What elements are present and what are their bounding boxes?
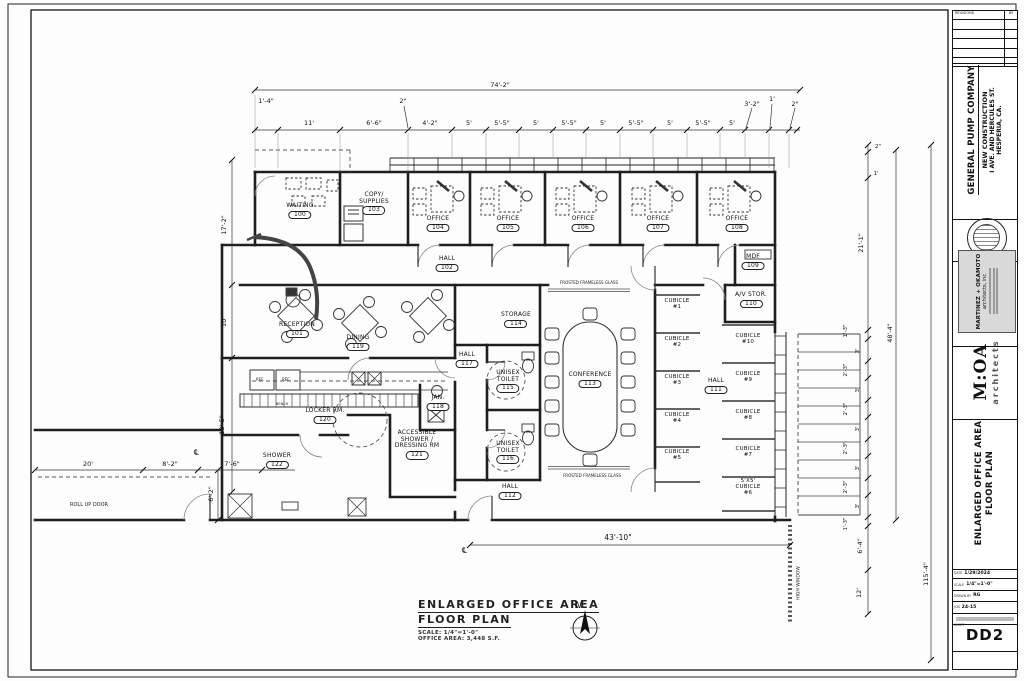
room-number: 110 <box>740 300 763 309</box>
room-label: MDF109 <box>742 254 765 270</box>
dim: 5' <box>466 119 472 127</box>
room-number: 112 <box>499 492 522 501</box>
room-label: CONFERENCE113 <box>568 372 611 388</box>
room-name: OFFICE <box>572 216 595 223</box>
dim: 8'-2" <box>162 460 177 468</box>
room-name: UNISEX TOILET <box>496 370 520 383</box>
sheet-border <box>8 4 1016 677</box>
room-name: HALL <box>459 352 475 359</box>
cubicle-label: 5'X5' CUBICLE #6 <box>735 478 760 496</box>
room-number: 109 <box>742 262 765 271</box>
room-number: 111 <box>705 386 728 395</box>
dim: 2'-3" <box>843 402 849 415</box>
client-block: GENERAL PUMP COMPANY NEW CONSTRUCTION I … <box>956 52 1014 208</box>
dim: 5' <box>600 119 606 127</box>
room-number: 101 <box>285 330 308 339</box>
cubicle-label: CUBICLE #5 <box>664 449 689 461</box>
room-name: JAN. <box>432 395 445 402</box>
cubicle-label: CUBICLE #2 <box>664 336 689 348</box>
dim: 1' <box>873 171 878 177</box>
dim: 3' <box>855 348 861 353</box>
logo-subtext: architects <box>991 339 1000 404</box>
room-name: RECEPTION <box>279 322 315 329</box>
room-label: HALL102 <box>436 256 459 272</box>
dim: 3'-2" <box>744 100 759 108</box>
dim: 2" <box>399 97 406 105</box>
room-name: UNISEX TOILET <box>496 441 520 454</box>
room-label: UNISEX TOILET116 <box>496 441 520 464</box>
sheet-title-block: ENLARGED OFFICE AREA FLOOR PLAN <box>956 410 1014 556</box>
room-number: 108 <box>726 224 749 233</box>
room-name: OFFICE <box>427 216 450 223</box>
room-label: DINING119 <box>347 335 370 351</box>
dim: 3' <box>855 387 861 392</box>
room-label: HALL112 <box>499 484 522 500</box>
bench-note: BENCH <box>276 402 288 406</box>
room-number: 121 <box>406 451 429 460</box>
dim: 7'-6" <box>224 460 239 468</box>
dim: 11' <box>304 119 314 127</box>
firm-type: architects, inc <box>982 274 988 309</box>
sheet-title-line2: FLOOR PLAN <box>985 451 996 515</box>
room-name: A/V STOR. <box>735 292 767 299</box>
dim: 5'-5" <box>494 119 509 127</box>
dim: 18'-5" <box>218 415 226 435</box>
client-name: GENERAL PUMP COMPANY <box>967 65 979 194</box>
sheet-number: DD2 <box>952 626 1018 644</box>
room-number: 115 <box>497 384 520 393</box>
dim-bottom: 43'-10" <box>604 533 631 542</box>
cubicle-label: CUBICLE #10 <box>735 333 760 345</box>
illegible-field <box>956 617 1014 621</box>
floor-plan-linework <box>0 0 1024 681</box>
revisions-header: REVISIONS <box>953 11 1005 19</box>
cubicle-label: CUBICLE #4 <box>664 412 689 424</box>
room-number: 119 <box>347 343 370 352</box>
room-label: RECEPTION101 <box>279 322 315 338</box>
room-label: HALL117 <box>456 352 479 368</box>
room-label: SHOWER122 <box>263 453 291 469</box>
dim: 2'-3" <box>843 441 849 454</box>
room-label: LOCKER RM.120 <box>305 408 344 424</box>
dim-overall-top: 74'-2" <box>490 81 510 89</box>
frosted-glass-note: FROSTED FRAMELESS GLASS <box>560 280 618 285</box>
room-name: WAITING <box>286 203 313 210</box>
drawn-by-label: DRAWN BY <box>954 594 971 598</box>
roll-up-door-note: ROLL UP DOOR <box>70 502 108 508</box>
room-label: OFFICE106 <box>572 216 595 232</box>
dim: 5'-5" <box>561 119 576 127</box>
room-name: OFFICE <box>497 216 520 223</box>
room-number: 105 <box>497 224 520 233</box>
dim: 5'-5" <box>628 119 643 127</box>
room-label: STORAGE114 <box>501 312 531 328</box>
job-label: JOB <box>954 605 960 609</box>
room-label: OFFICE104 <box>427 216 450 232</box>
drawn-by-value: RG <box>973 593 980 598</box>
dim: 5' <box>667 119 673 127</box>
dim: 48'-4" <box>886 323 894 343</box>
room-label: ACCESSIBLE SHOWER / DRESSING RM121 <box>395 430 440 460</box>
plan-scale: SCALE: 1/4"=1'-0" <box>418 630 599 637</box>
cubicle-label: CUBICLE #9 <box>735 371 760 383</box>
cubicle-label: CUBICLE #8 <box>735 409 760 421</box>
dim: 21'-1" <box>857 233 865 253</box>
room-label: A/V STOR.110 <box>735 292 767 308</box>
dim: 6'-2" <box>207 486 215 501</box>
dim: 2'-3" <box>843 363 849 376</box>
dim: 5' <box>729 119 735 127</box>
dim: 1' <box>769 95 775 103</box>
room-number: 120 <box>313 416 336 425</box>
room-name: HALL <box>439 256 455 263</box>
firm-logo: M:OA architects <box>956 338 1014 406</box>
room-label: HALL111 <box>705 378 728 394</box>
dim: 2'-3" <box>843 480 849 493</box>
job-value: 24-15 <box>962 605 977 610</box>
room-label: OFFICE105 <box>497 216 520 232</box>
dim: 4'-2" <box>422 119 437 127</box>
sheet-title-line1: ENLARGED OFFICE AREA <box>974 421 985 546</box>
room-name: STORAGE <box>501 312 531 319</box>
dim: 6'-4" <box>856 538 864 553</box>
centerline-symbol: ℄ <box>194 448 199 457</box>
room-name: MDF <box>746 254 760 261</box>
cubicle-label: CUBICLE #1 <box>664 298 689 310</box>
dim: 3' <box>855 465 861 470</box>
room-name: DINING <box>347 335 370 342</box>
room-number: 103 <box>363 206 386 215</box>
architect-firm-block: MARTINEZ + OKAMOTO architects, inc <box>958 250 1016 333</box>
dashed-lines <box>38 150 525 477</box>
room-name: CONFERENCE <box>568 372 611 379</box>
dim: 6'-6" <box>366 119 381 127</box>
ref-note: REF. <box>282 377 290 382</box>
drawing-sheet: { "tb": { "client": "GENERAL PUMP COMPAN… <box>0 0 1024 681</box>
ref-note: REF. <box>256 377 264 382</box>
room-name: OFFICE <box>726 216 749 223</box>
dim: 1'-3" <box>843 324 849 337</box>
room-name: COPY/ SUPPLIES <box>359 192 389 205</box>
project-line2: I AVE. AND HERCULES ST. <box>989 87 996 173</box>
room-label: WAITING100 <box>286 203 313 219</box>
project-line1: NEW CONSTRUCTION <box>981 91 989 168</box>
room-name: LOCKER RM. <box>305 408 344 415</box>
room-name: HALL <box>502 484 518 491</box>
plan-area: OFFICE AREA: 3,448 S.F. <box>418 636 599 643</box>
frosted-glass-note: FROSTED FRAMELESS GLASS <box>563 473 621 478</box>
room-name: OFFICE <box>647 216 670 223</box>
room-name: HALL <box>708 378 724 385</box>
room-label: UNISEX TOILET115 <box>496 370 520 393</box>
dim: 2" <box>875 144 881 150</box>
room-number: 122 <box>265 461 288 470</box>
room-name: SHOWER <box>263 453 291 460</box>
room-number: 102 <box>436 264 459 273</box>
high-window-note: HIGH WINDOW <box>797 566 802 600</box>
room-number: 118 <box>427 403 450 412</box>
dim: 12' <box>855 588 863 598</box>
cubicle-label: CUBICLE #3 <box>664 374 689 386</box>
room-number: 117 <box>456 360 479 369</box>
room-name: ACCESSIBLE SHOWER / DRESSING RM <box>395 430 440 450</box>
plan-title-line2: FLOOR PLAN <box>418 613 511 628</box>
dim: 5'-5" <box>695 119 710 127</box>
scale-value: 1/4"=1'-0" <box>966 582 992 587</box>
by-header: BY <box>1005 11 1017 19</box>
plan-title: ENLARGED OFFICE AREA FLOOR PLAN SCALE: 1… <box>418 598 599 643</box>
north-label: N <box>575 601 582 611</box>
dim: 10' <box>220 317 228 327</box>
dim: 1'-3" <box>843 517 849 530</box>
dim: 3' <box>855 503 861 508</box>
date-value: 1/29/2024 <box>964 571 990 576</box>
dim: 17'-2" <box>220 215 228 235</box>
dim: 2" <box>791 100 798 108</box>
room-number: 107 <box>647 224 670 233</box>
sheet-number-box: SHEET DD2 <box>952 622 1018 652</box>
dim: 115'-4" <box>922 562 930 586</box>
cubicle-label: CUBICLE #7 <box>735 446 760 458</box>
room-number: 113 <box>578 380 601 389</box>
centerline-symbol: ℄ <box>462 546 467 555</box>
dim: 1'-4" <box>258 97 273 105</box>
room-number: 106 <box>572 224 595 233</box>
dim: 20' <box>83 460 93 468</box>
plan-title-line1: ENLARGED OFFICE AREA <box>418 598 599 613</box>
room-label: OFFICE108 <box>726 216 749 232</box>
room-number: 116 <box>497 455 520 464</box>
dim: 5' <box>533 119 539 127</box>
dim: 3' <box>855 426 861 431</box>
logo-text: M:OA <box>971 343 991 400</box>
project-line3: HESPERIA, CA. <box>996 105 1003 154</box>
scale-label: SCALE <box>954 583 964 587</box>
title-block-fields: DATE1/29/2024 SCALE1/4"=1'-0" DRAWN BYRG… <box>952 568 1018 625</box>
room-label: OFFICE107 <box>647 216 670 232</box>
room-label: COPY/ SUPPLIES103 <box>359 192 389 215</box>
room-number: 100 <box>288 211 311 220</box>
room-number: 114 <box>505 320 528 329</box>
room-number: 104 <box>427 224 450 233</box>
room-label: JAN.118 <box>427 395 450 411</box>
date-label: DATE <box>954 571 962 575</box>
